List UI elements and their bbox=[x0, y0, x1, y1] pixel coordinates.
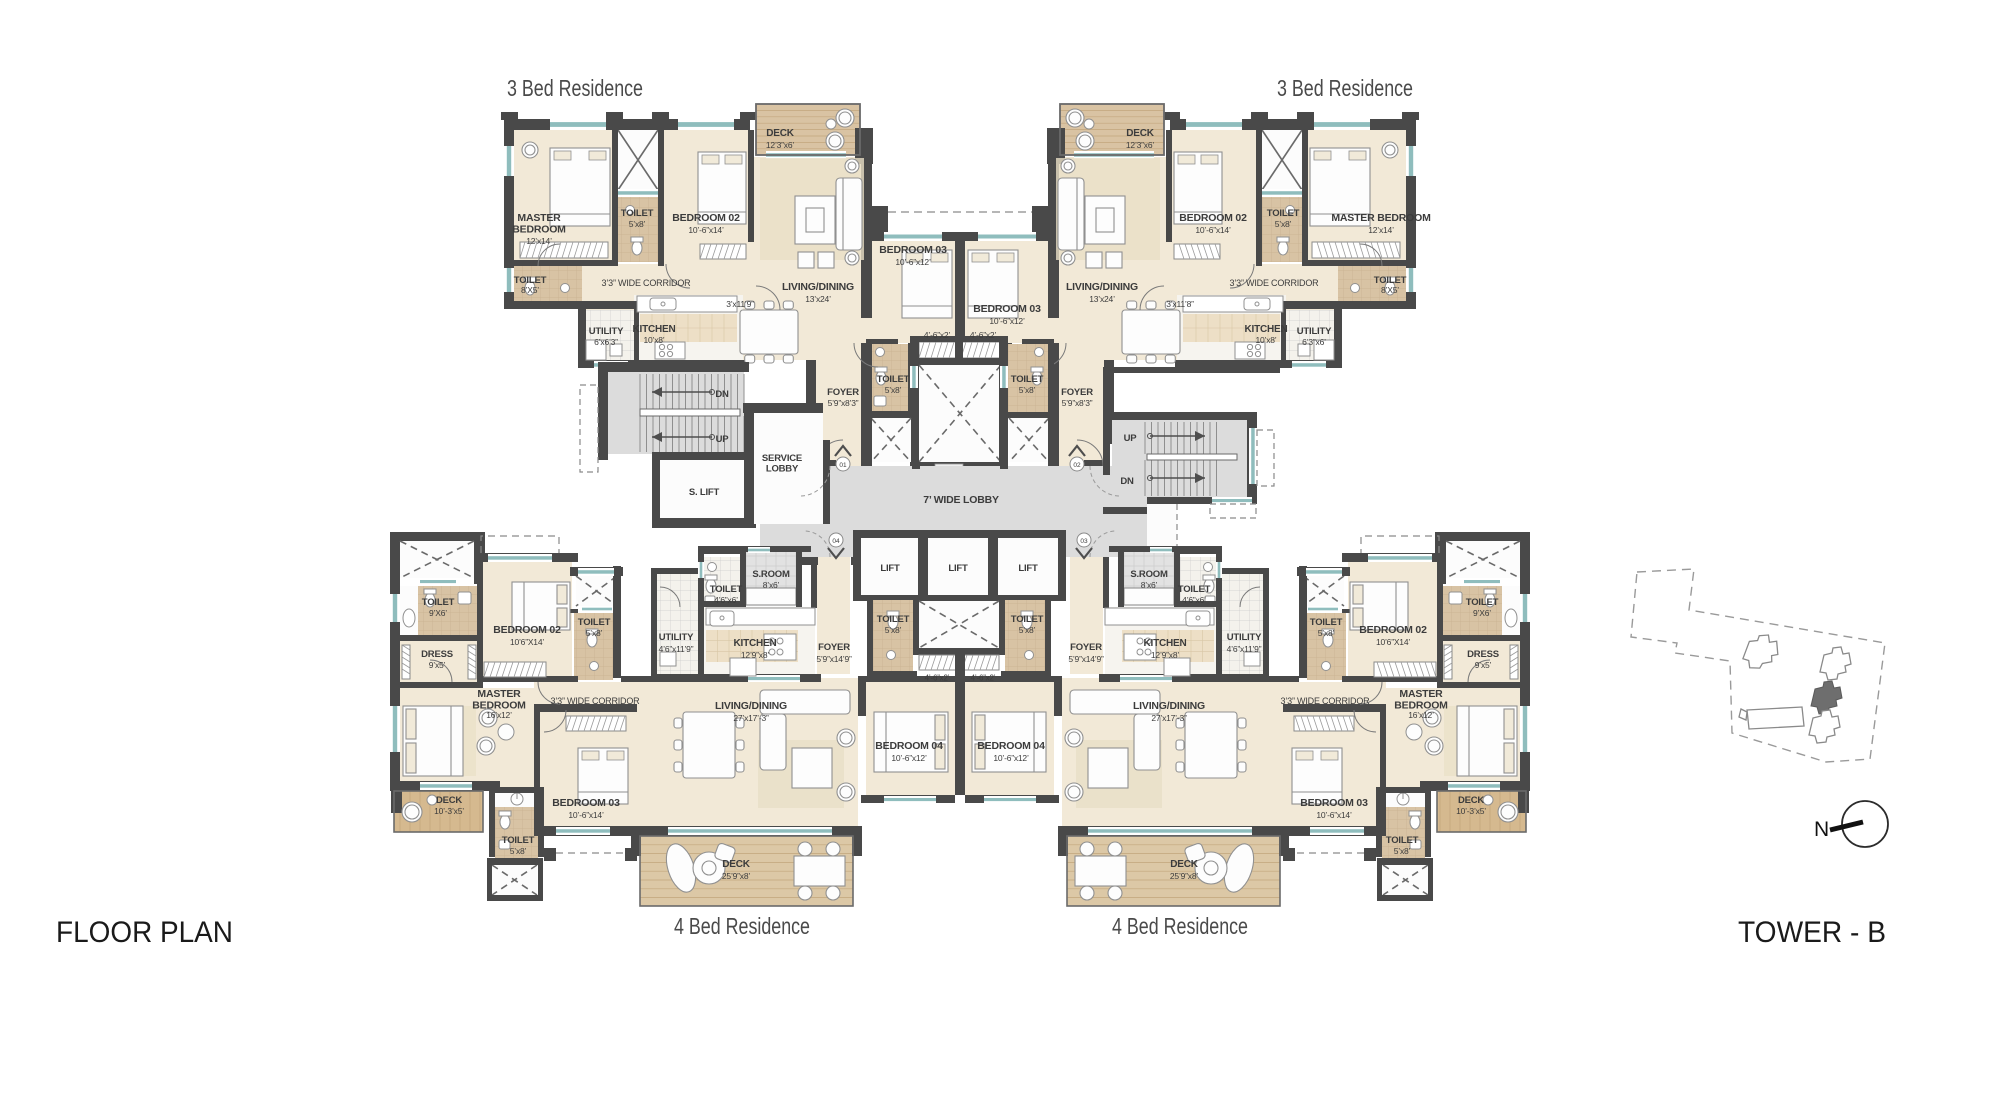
svg-text:KITCHEN: KITCHEN bbox=[733, 638, 776, 649]
svg-text:UTILITY: UTILITY bbox=[659, 632, 694, 643]
svg-text:12’x14’: 12’x14’ bbox=[526, 236, 552, 246]
svg-text:FOYER: FOYER bbox=[827, 387, 859, 398]
svg-text:TOILET: TOILET bbox=[710, 584, 743, 595]
svg-text:4’6”x11’9”: 4’6”x11’9” bbox=[659, 644, 694, 654]
svg-text:MASTERBEDROOM: MASTERBEDROOM bbox=[1394, 688, 1448, 712]
svg-text:3’3” WIDE CORRIDOR: 3’3” WIDE CORRIDOR bbox=[602, 278, 692, 288]
svg-text:03: 03 bbox=[1080, 538, 1088, 545]
svg-text:S. LIFT: S. LIFT bbox=[689, 487, 720, 498]
svg-text:12’9”x8’: 12’9”x8’ bbox=[1151, 650, 1179, 660]
svg-text:BEDROOM 02: BEDROOM 02 bbox=[1179, 212, 1247, 224]
svg-text:BEDROOM 03: BEDROOM 03 bbox=[552, 797, 620, 809]
svg-text:10’6”X14’: 10’6”X14’ bbox=[510, 637, 544, 647]
svg-text:3 Bed Residence: 3 Bed Residence bbox=[507, 75, 643, 101]
svg-text:10’-3’x5’: 10’-3’x5’ bbox=[434, 806, 464, 816]
svg-text:5’9”x8’3”: 5’9”x8’3” bbox=[828, 398, 859, 408]
svg-text:BEDROOM 03: BEDROOM 03 bbox=[879, 244, 947, 256]
svg-text:FOYER: FOYER bbox=[1070, 642, 1102, 653]
svg-text:3’3” WIDE CORRIDOR: 3’3” WIDE CORRIDOR bbox=[1230, 278, 1320, 288]
svg-text:10’-6”x14’: 10’-6”x14’ bbox=[688, 225, 724, 235]
svg-text:01: 01 bbox=[839, 462, 847, 469]
svg-text:10’-6”x14’: 10’-6”x14’ bbox=[568, 810, 604, 820]
svg-text:TOILET: TOILET bbox=[877, 374, 910, 385]
svg-text:9’x5’: 9’x5’ bbox=[1475, 660, 1492, 670]
svg-text:N: N bbox=[1814, 818, 1829, 841]
svg-text:UP: UP bbox=[716, 434, 730, 445]
svg-text:FOYER: FOYER bbox=[818, 642, 850, 653]
svg-text:4’-6”x2’: 4’-6”x2’ bbox=[925, 674, 950, 683]
svg-text:5’x8’: 5’x8’ bbox=[1275, 219, 1292, 229]
svg-text:27’x17’-3”: 27’x17’-3” bbox=[1151, 713, 1187, 723]
svg-text:12’3”x6’: 12’3”x6’ bbox=[1126, 140, 1154, 150]
svg-text:DECK: DECK bbox=[436, 795, 462, 806]
svg-text:MASTERBEDROOM: MASTERBEDROOM bbox=[512, 212, 566, 236]
svg-text:7’ WIDE LOBBY: 7’ WIDE LOBBY bbox=[923, 494, 999, 506]
svg-text:BEDROOM 03: BEDROOM 03 bbox=[1300, 797, 1368, 809]
svg-text:DECK: DECK bbox=[766, 128, 795, 139]
svg-text:8’x6’: 8’x6’ bbox=[1141, 580, 1158, 590]
svg-text:TOILET: TOILET bbox=[621, 208, 654, 219]
svg-text:10’-6”x12’: 10’-6”x12’ bbox=[989, 316, 1025, 326]
svg-text:4 Bed Residence: 4 Bed Residence bbox=[674, 913, 810, 939]
svg-text:12’3”x6’: 12’3”x6’ bbox=[766, 140, 794, 150]
svg-text:TOWER - B: TOWER - B bbox=[1738, 916, 1886, 949]
svg-text:TOILET: TOILET bbox=[1466, 597, 1499, 608]
svg-text:02: 02 bbox=[1073, 462, 1081, 469]
svg-text:13’x24’: 13’x24’ bbox=[1089, 294, 1115, 304]
svg-text:3 Bed Residence: 3 Bed Residence bbox=[1277, 75, 1413, 101]
svg-text:4’6”x6’: 4’6”x6’ bbox=[1182, 595, 1206, 605]
svg-text:DECK: DECK bbox=[1126, 128, 1155, 139]
svg-text:UTILITY: UTILITY bbox=[589, 326, 624, 337]
svg-text:KITCHEN: KITCHEN bbox=[1143, 638, 1186, 649]
svg-text:10’-6”x14’: 10’-6”x14’ bbox=[1195, 225, 1231, 235]
svg-text:UP: UP bbox=[1124, 433, 1138, 444]
svg-text:10’-6”x12’: 10’-6”x12’ bbox=[993, 753, 1029, 763]
svg-text:DN: DN bbox=[715, 389, 729, 400]
svg-text:SERVICELOBBY: SERVICELOBBY bbox=[762, 453, 802, 475]
svg-text:TOILET: TOILET bbox=[1310, 617, 1343, 628]
svg-text:10’-6”x12’: 10’-6”x12’ bbox=[891, 753, 927, 763]
svg-text:9’x5’: 9’x5’ bbox=[429, 660, 446, 670]
svg-text:12’9”x8’: 12’9”x8’ bbox=[741, 650, 769, 660]
svg-text:LIFT: LIFT bbox=[948, 563, 968, 574]
svg-text:5’x8’: 5’x8’ bbox=[885, 385, 902, 395]
svg-text:DECK: DECK bbox=[1458, 795, 1484, 806]
svg-text:MASTER BEDROOM: MASTER BEDROOM bbox=[1331, 212, 1431, 224]
svg-text:10’x8’: 10’x8’ bbox=[1255, 335, 1276, 345]
svg-text:16’x12’: 16’x12’ bbox=[1408, 710, 1434, 720]
svg-text:UTILITY: UTILITY bbox=[1297, 326, 1332, 337]
svg-text:10’-6”x14’: 10’-6”x14’ bbox=[1316, 810, 1352, 820]
svg-text:DN: DN bbox=[1120, 476, 1134, 487]
svg-text:4’6”x6’: 4’6”x6’ bbox=[714, 595, 738, 605]
svg-text:TOILET: TOILET bbox=[877, 614, 910, 625]
svg-text:LIFT: LIFT bbox=[1018, 563, 1038, 574]
svg-text:5’x8’: 5’x8’ bbox=[1019, 385, 1036, 395]
svg-text:5’x8’: 5’x8’ bbox=[510, 846, 527, 856]
svg-text:TOILET: TOILET bbox=[422, 597, 455, 608]
svg-text:S.ROOM: S.ROOM bbox=[1130, 569, 1168, 580]
svg-text:25’9”x8’: 25’9”x8’ bbox=[1170, 871, 1198, 881]
svg-text:8’x6’: 8’x6’ bbox=[763, 580, 780, 590]
svg-text:LIVING/DINING: LIVING/DINING bbox=[782, 281, 854, 293]
svg-text:10’-3’x5’: 10’-3’x5’ bbox=[1456, 806, 1486, 816]
svg-text:BEDROOM 04: BEDROOM 04 bbox=[977, 740, 1045, 752]
svg-text:3’x11’8”: 3’x11’8” bbox=[1166, 299, 1194, 309]
svg-text:4’-6”x2’: 4’-6”x2’ bbox=[971, 674, 996, 683]
svg-text:4’-6”x2’: 4’-6”x2’ bbox=[924, 330, 951, 340]
svg-text:4’-6”x2’: 4’-6”x2’ bbox=[970, 330, 997, 340]
svg-text:TOILET: TOILET bbox=[1267, 208, 1300, 219]
svg-text:3’x11’9”: 3’x11’9” bbox=[726, 299, 754, 309]
svg-text:6’3”x6’: 6’3”x6’ bbox=[1302, 337, 1326, 347]
svg-text:5’9”x8’3”: 5’9”x8’3” bbox=[1062, 398, 1093, 408]
svg-text:27’x17’-3”: 27’x17’-3” bbox=[733, 713, 769, 723]
svg-text:TOILET: TOILET bbox=[1011, 614, 1044, 625]
svg-text:10’x8’: 10’x8’ bbox=[643, 335, 664, 345]
svg-text:TOILET: TOILET bbox=[1178, 584, 1211, 595]
svg-text:LIVING/DINING: LIVING/DINING bbox=[1133, 700, 1205, 712]
svg-text:TOILET: TOILET bbox=[578, 617, 611, 628]
svg-text:BEDROOM 02: BEDROOM 02 bbox=[493, 624, 561, 636]
svg-text:5’x8’: 5’x8’ bbox=[885, 625, 902, 635]
svg-text:KITCHEN: KITCHEN bbox=[1244, 324, 1287, 335]
svg-text:KITCHEN: KITCHEN bbox=[632, 324, 675, 335]
svg-text:5’x8’: 5’x8’ bbox=[1394, 846, 1411, 856]
svg-text:13’x24’: 13’x24’ bbox=[805, 294, 831, 304]
svg-text:TOILET: TOILET bbox=[502, 835, 535, 846]
svg-text:DECK: DECK bbox=[1170, 859, 1199, 870]
svg-text:4 Bed Residence: 4 Bed Residence bbox=[1112, 913, 1248, 939]
svg-text:TOILET: TOILET bbox=[1386, 835, 1419, 846]
svg-text:S.ROOM: S.ROOM bbox=[752, 569, 790, 580]
svg-text:5’x8’: 5’x8’ bbox=[1019, 625, 1036, 635]
svg-text:UTILITY: UTILITY bbox=[1227, 632, 1262, 643]
svg-text:MASTERBEDROOM: MASTERBEDROOM bbox=[472, 688, 526, 712]
svg-text:BEDROOM 03: BEDROOM 03 bbox=[973, 303, 1041, 315]
svg-text:DRESS: DRESS bbox=[421, 649, 453, 660]
svg-text:10’-6”x12’: 10’-6”x12’ bbox=[895, 257, 931, 267]
svg-text:TOILET: TOILET bbox=[1011, 374, 1044, 385]
svg-text:FOYER: FOYER bbox=[1061, 387, 1093, 398]
svg-text:5’x8’: 5’x8’ bbox=[586, 628, 603, 638]
svg-text:9’X6’: 9’X6’ bbox=[1473, 608, 1491, 618]
svg-text:LIVING/DINING: LIVING/DINING bbox=[1066, 281, 1138, 293]
svg-text:12’x14’: 12’x14’ bbox=[1368, 225, 1394, 235]
svg-text:5’x8’: 5’x8’ bbox=[1318, 628, 1335, 638]
svg-text:9’X6’: 9’X6’ bbox=[429, 608, 447, 618]
svg-text:LIFT: LIFT bbox=[880, 563, 900, 574]
svg-text:3’3” WIDE CORRIDOR: 3’3” WIDE CORRIDOR bbox=[551, 696, 641, 706]
svg-text:04: 04 bbox=[832, 538, 840, 545]
svg-text:5’9”x14’9”: 5’9”x14’9” bbox=[1068, 654, 1104, 664]
svg-text:BEDROOM 04: BEDROOM 04 bbox=[875, 740, 943, 752]
svg-text:25’9”x8’: 25’9”x8’ bbox=[722, 871, 750, 881]
svg-text:16’x12’: 16’x12’ bbox=[486, 710, 512, 720]
svg-text:4’6”x11’9”: 4’6”x11’9” bbox=[1227, 644, 1262, 654]
svg-text:10’6”X14’: 10’6”X14’ bbox=[1376, 637, 1410, 647]
svg-text:FLOOR PLAN: FLOOR PLAN bbox=[56, 916, 233, 949]
svg-text:DECK: DECK bbox=[722, 859, 751, 870]
svg-text:DRESS: DRESS bbox=[1467, 649, 1499, 660]
svg-text:BEDROOM 02: BEDROOM 02 bbox=[672, 212, 740, 224]
svg-text:5’x8’: 5’x8’ bbox=[629, 219, 646, 229]
svg-text:6’x6’3”: 6’x6’3” bbox=[594, 337, 618, 347]
svg-text:LIVING/DINING: LIVING/DINING bbox=[715, 700, 787, 712]
svg-text:8’X5’: 8’X5’ bbox=[521, 285, 539, 295]
svg-text:BEDROOM 02: BEDROOM 02 bbox=[1359, 624, 1427, 636]
svg-text:5’9”x14’9”: 5’9”x14’9” bbox=[816, 654, 852, 664]
svg-text:3’3” WIDE CORRIDOR: 3’3” WIDE CORRIDOR bbox=[1281, 696, 1371, 706]
svg-text:8’X5’: 8’X5’ bbox=[1381, 285, 1399, 295]
